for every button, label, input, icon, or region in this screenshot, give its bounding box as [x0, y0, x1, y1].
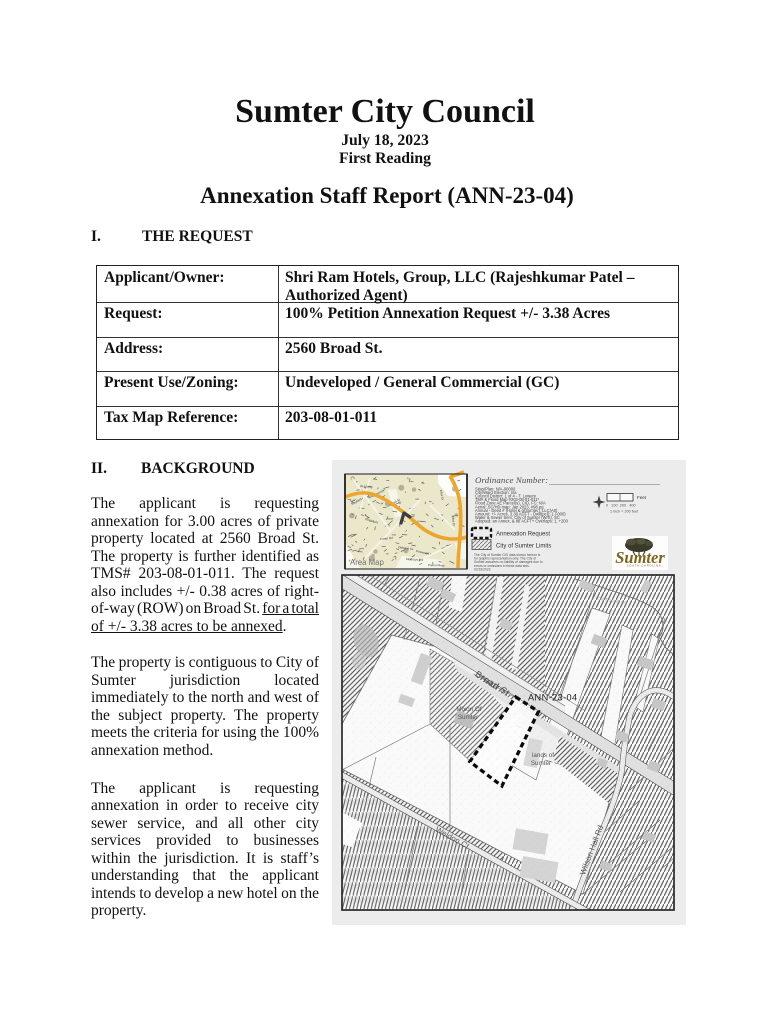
svg-text:1 inch = 200 feet: 1 inch = 200 feet: [610, 510, 639, 514]
svg-text:ANN-23-04: ANN-23-04: [528, 693, 578, 703]
svg-text:Adopted: an Annex, & 88 ACFT+: Adopted: an Annex, & 88 ACFT+ Overlaps: …: [475, 518, 569, 523]
svg-text:lands of: lands of: [532, 752, 554, 759]
svg-text:0 100 200 400: 0 100 200 400: [606, 504, 636, 508]
svg-text:02/19/2023: 02/19/2023: [474, 567, 491, 571]
svg-text:SOUTH CAROLINA: SOUTH CAROLINA: [627, 564, 662, 568]
svg-text:Patriot Pkwy: Patriot Pkwy: [428, 563, 445, 568]
svg-text:Ordinance Number:: Ordinance Number:: [475, 475, 548, 485]
svg-text:Area Map: Area Map: [350, 558, 384, 567]
svg-text:Feet: Feet: [637, 495, 647, 500]
svg-text:Sumter: Sumter: [531, 760, 551, 767]
svg-text:Annexation Request: Annexation Request: [496, 532, 550, 538]
svg-text:City of Sumter Limits: City of Sumter Limits: [496, 544, 551, 550]
svg-text:Sumter: Sumter: [458, 714, 478, 721]
svg-text:Mixon Of: Mixon Of: [456, 706, 481, 713]
